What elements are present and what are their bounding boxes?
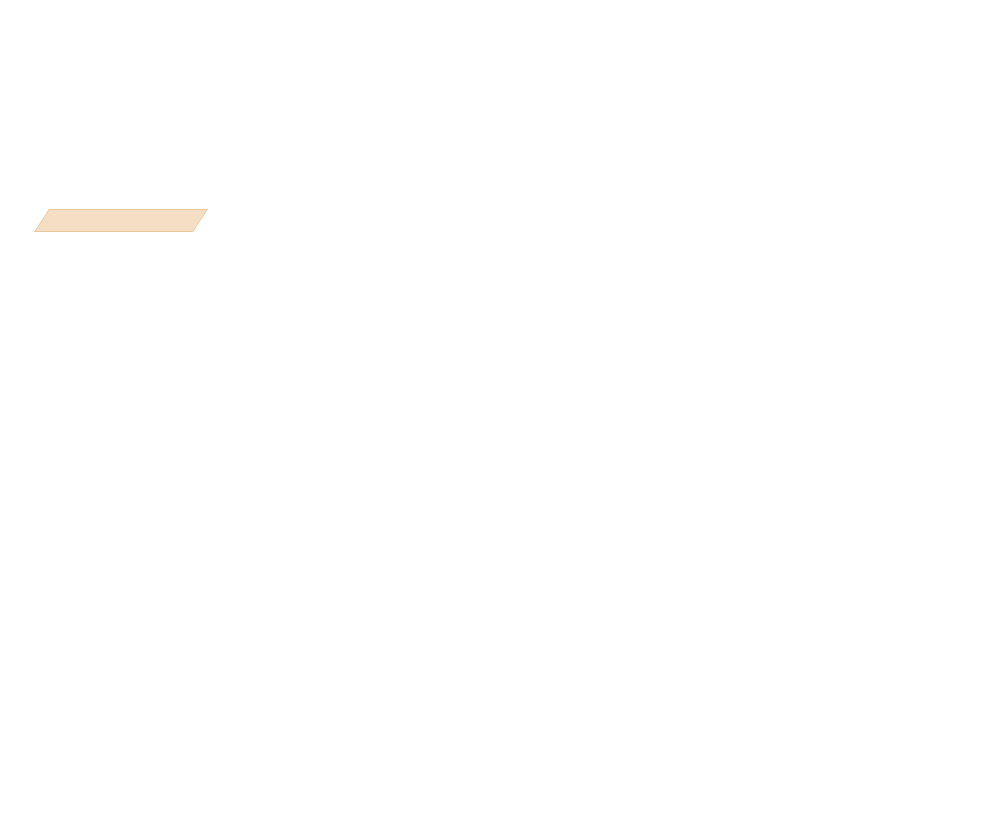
profile-graph: [0, 0, 994, 840]
